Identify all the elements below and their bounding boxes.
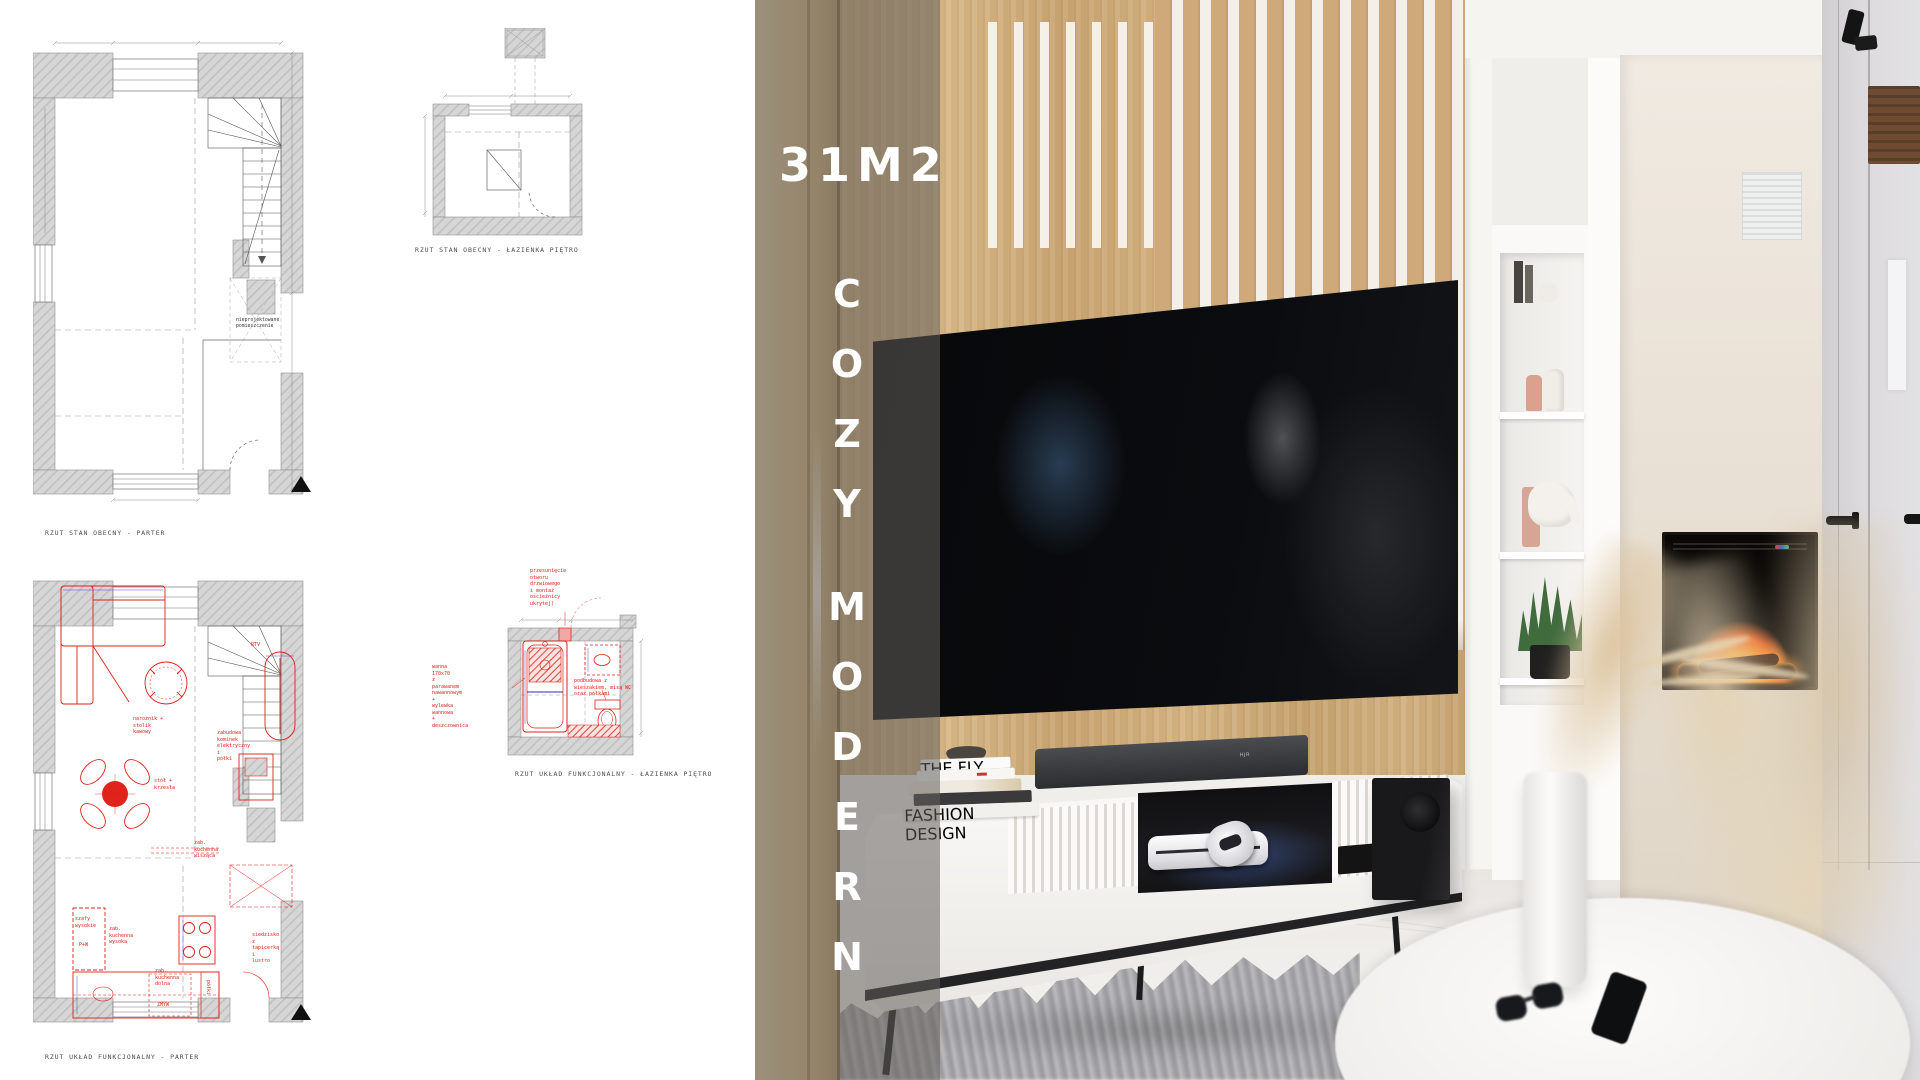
decor-vase-white [1546,369,1564,411]
label-tall-wardrobes: szafy wysokie [75,916,109,929]
ceiling-spotlight-head [1854,35,1877,51]
label-fireplace: zabudowa kominek elektryczny i półki [217,730,273,763]
label-dining: stół + krzesła [154,778,194,791]
decor-book-2 [1525,265,1533,303]
sunglasses-lens-right [1531,981,1565,1010]
small-speaker-box [1338,843,1374,874]
label-moved-door: przesunięcie otworu drzwiowego i montaż … [530,568,592,607]
wood-slat-gaps-upper [988,22,1160,248]
ps5-controller-touchpad [1218,833,1243,852]
label-kitchen-tall: zab. kuchenna wysoka [109,926,149,946]
decor-vase-pink [1526,375,1542,411]
partition-dashed [55,98,195,470]
label-kitchen-hanging: zab. kuchenna wisząca [194,840,238,860]
plan-existing-bath-drawing [415,28,590,238]
caption-existing-ground: RZUT STAN OBECNY - PARTER [45,529,165,537]
wall-corner-strip [1465,0,1492,880]
subwoofer-cone [1400,792,1440,832]
vertical-word-modern: MODERN [821,585,869,1005]
label-wc: podbudowa z wieszakiem, misą WC oraz pół… [574,678,644,698]
console-open-shelf [1138,783,1332,893]
decor-book-1 [1514,261,1523,303]
door-frame-light [1888,260,1906,390]
title-overlay-strip: 31M2 COZY MODERN [755,0,940,1080]
area-label: 31M2 [779,138,949,192]
walls [33,53,303,494]
room-lines [203,340,281,470]
label-tv: RTV [251,642,281,649]
plan-existing-ground: nieprojektowane pomieszczenie [33,28,313,528]
label-bathtub: wanna 170x70 z parawanem nawannowym + wy… [432,664,476,729]
label-dishwasher: ZMYW [157,1002,193,1009]
caption-functional-ground: RZUT UKŁAD FUNKCJONALNY - PARTER [45,1053,199,1061]
windows [35,59,198,489]
subwoofer [1372,778,1450,900]
book-2-red-mark [977,773,987,776]
vanity [585,645,620,675]
interior-render: HJR THE FLY FASHION DESIGN 31M2 COZY [755,0,1920,1080]
label-washer-dryer: P+W [79,942,103,949]
unplanned-room-note: nieprojektowane pomieszczenie [236,318,292,330]
label-shelves: półki [205,980,211,995]
shelf-board-1 [1500,412,1584,419]
label-sofa: narożnik + stolik kawowy [133,716,181,736]
decor-sphere [1538,283,1558,303]
plan-existing-ground-drawing [33,28,313,528]
heated-floor-strip [568,725,620,737]
vertical-word-cozy: COZY [821,272,869,552]
tv-screen [873,280,1458,720]
label-kitchen-base: zab. kuchenna dolna [155,968,195,988]
plan-existing-bath [415,28,590,238]
dimension-lines [45,41,294,502]
label-seat: siedzisko z tapicerką i lustro [252,932,304,965]
shelf-board-2 [1500,552,1584,559]
soundbar-logo: HJR [1240,752,1250,759]
bathtub [523,641,567,732]
wood-beam-box [1868,86,1920,164]
plan-functional-bath: przesunięcie otworu drzwiowego i montaż … [430,560,645,778]
walls [433,28,582,235]
air-vent-grille [1742,172,1802,240]
caption-functional-bath: RZUT UKŁAD FUNKCJONALNY - ŁAZIENKA PIĘTR… [515,770,712,778]
table-vase [1523,772,1587,987]
caption-existing-bath: RZUT STAN OBECNY - ŁAZIENKA PIĘTRO [415,246,579,254]
moved-door [559,628,571,641]
floor-plans-panel: nieprojektowane pomieszczenie RZUT STAN … [0,0,755,1080]
plan-functional-ground: narożnik + stolik kawowy zabudowa komine… [33,556,313,1048]
